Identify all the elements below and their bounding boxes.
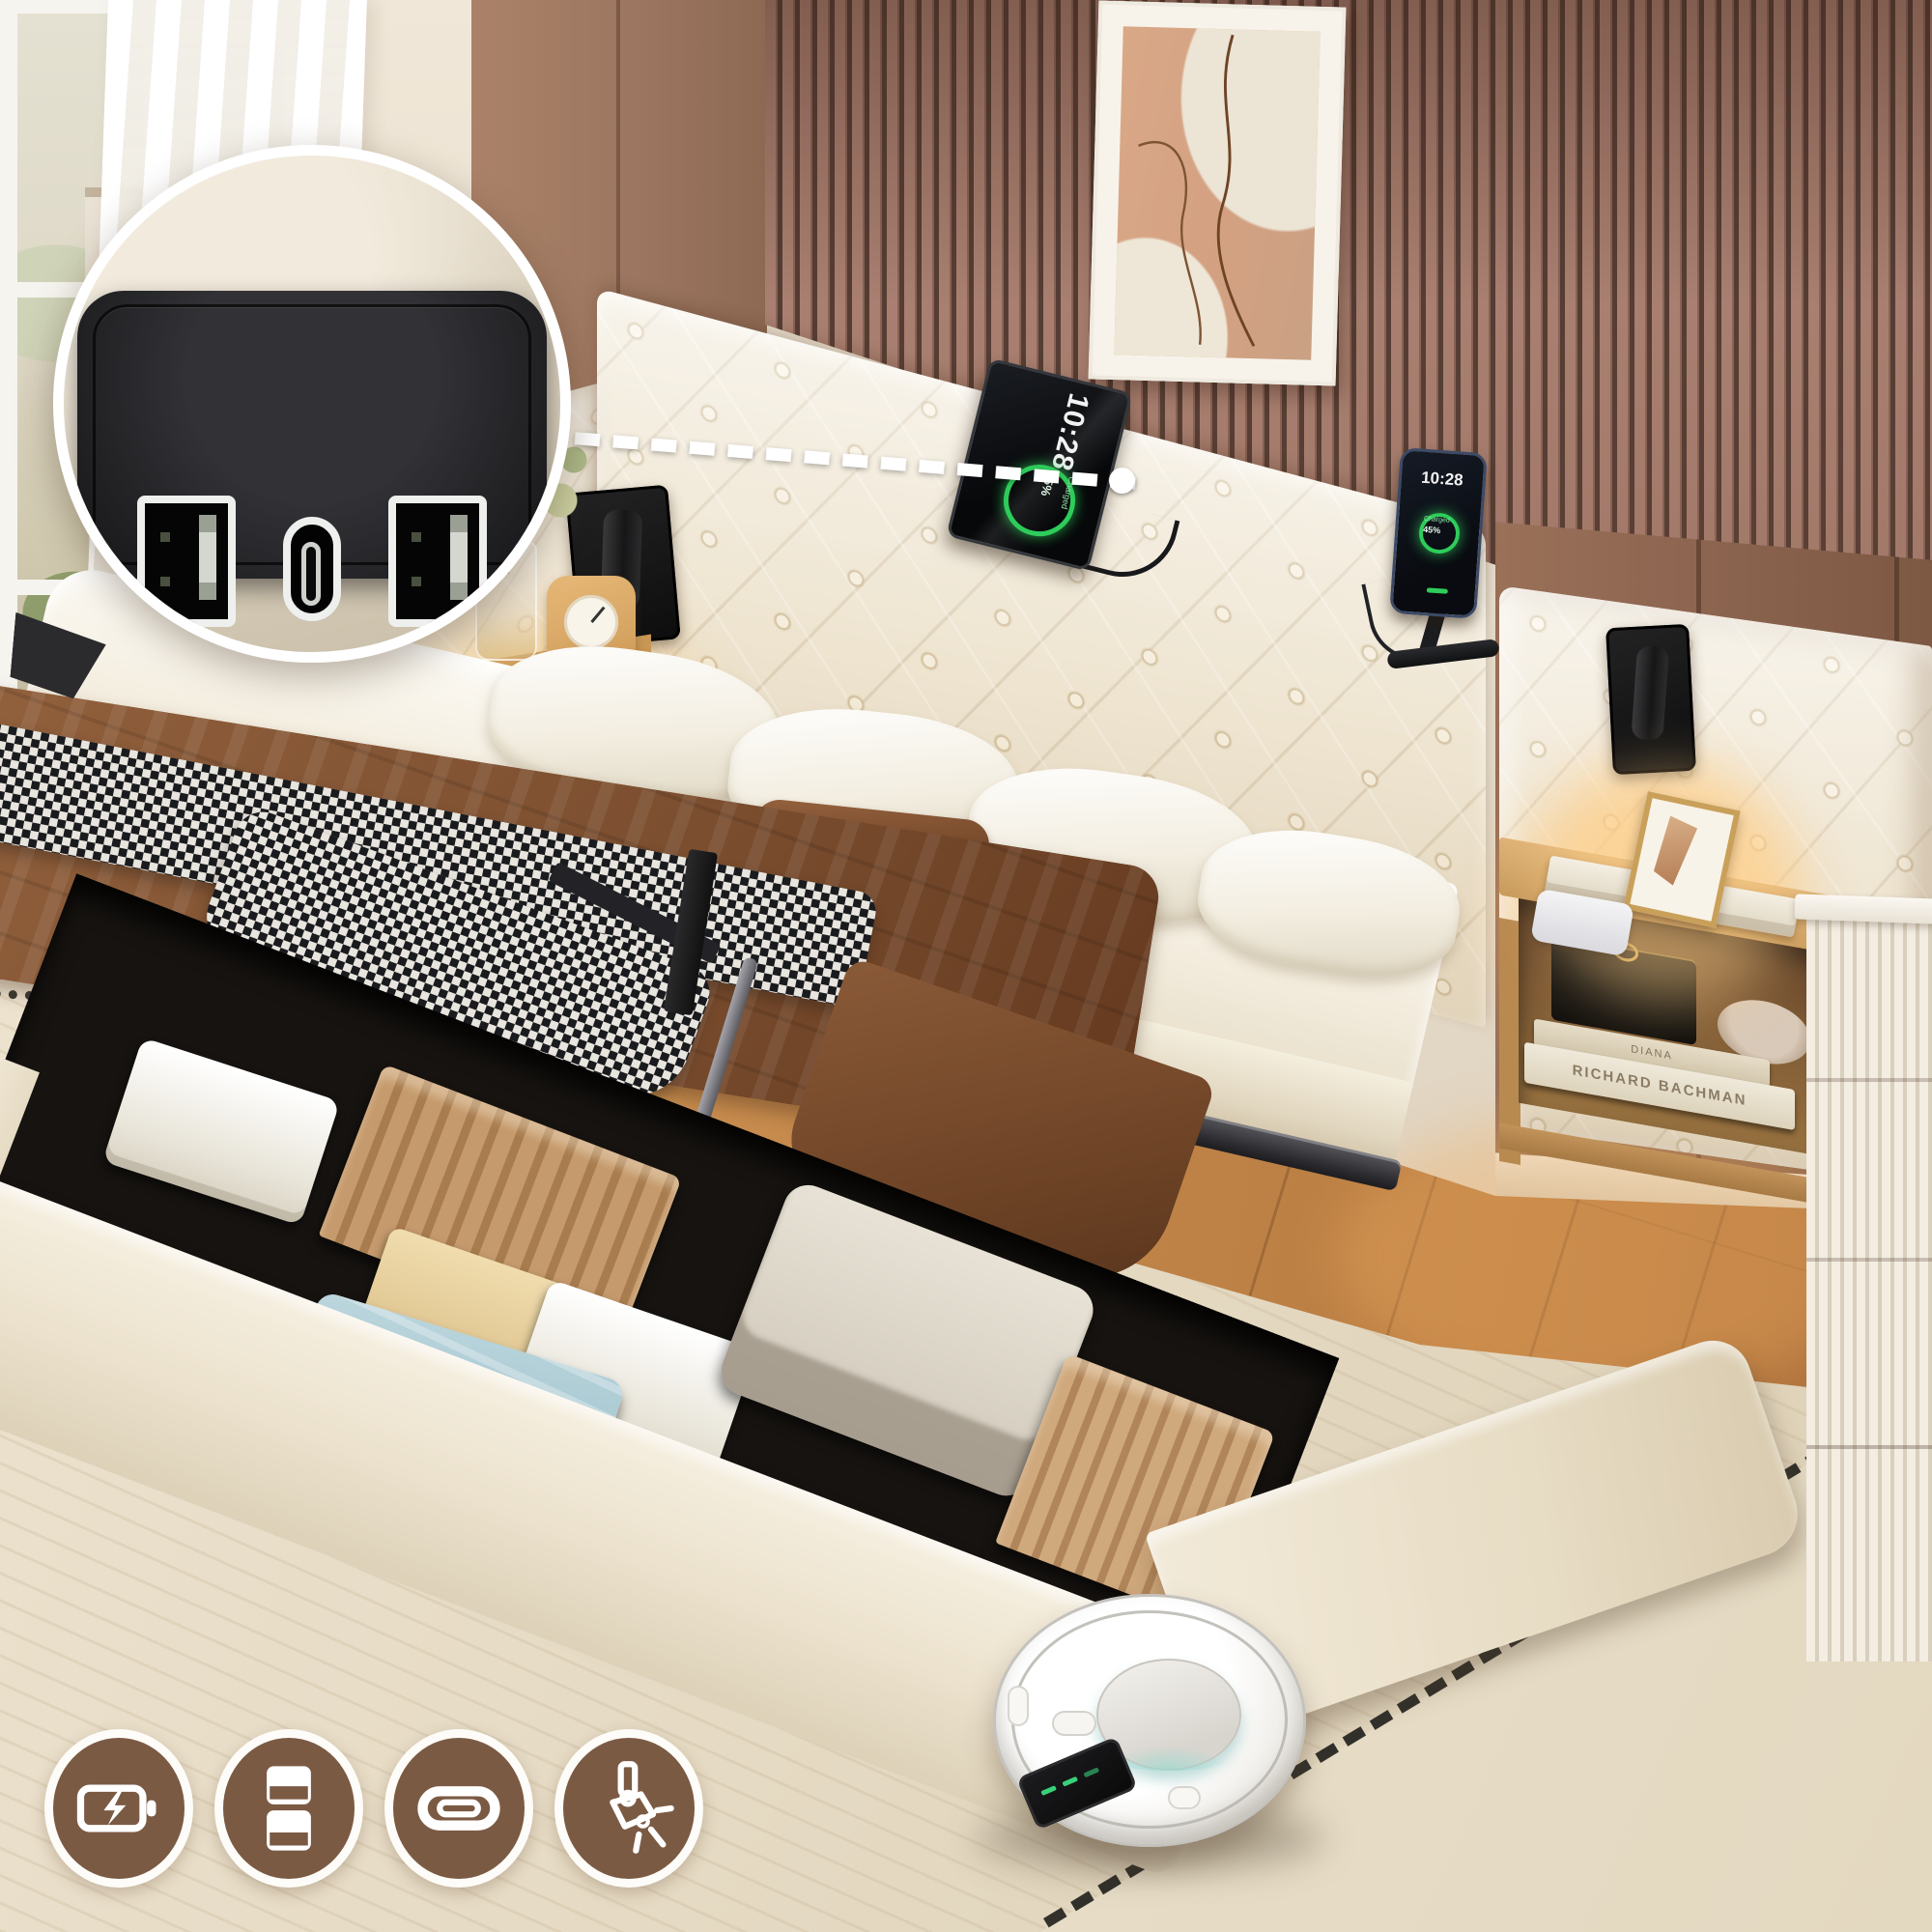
dual-usb-ports-icon	[239, 1758, 339, 1859]
usb-a-tongue	[450, 515, 468, 600]
callout-endpoint-dot	[1109, 468, 1135, 494]
charging-hub	[77, 291, 547, 579]
battery-status: Charged	[1424, 516, 1450, 525]
usb-c-tongue	[301, 542, 321, 606]
product-photo-stage: DIANA RICHARD BACHMAN 10:28 45% Charged …	[0, 0, 1932, 1932]
phone-clock: 10:28	[1401, 468, 1483, 492]
charge-bar	[1427, 587, 1448, 594]
spotlight-cylinder	[1631, 645, 1668, 741]
spotlight-icon	[579, 1758, 679, 1859]
usb-a-pins	[160, 532, 170, 542]
vacuum-bumper-slot	[1008, 1686, 1029, 1726]
charging-phone: 10:28 45% Charged	[1389, 447, 1488, 619]
feature-badge-usb-c	[384, 1729, 533, 1888]
usb-a-tongue	[199, 515, 216, 600]
usb-c-port-icon	[409, 1758, 509, 1859]
usb-a-pins	[412, 532, 421, 542]
tablet-clock: 10:28	[1048, 390, 1094, 464]
feature-badge-charging	[44, 1729, 193, 1888]
folded-shirts-white	[102, 1037, 340, 1226]
usb-a-port-left	[137, 496, 236, 627]
usb-a-port-right	[388, 496, 487, 627]
art-brush-lines	[1114, 26, 1320, 355]
white-fluted-dresser	[1806, 908, 1932, 1662]
photo	[1647, 813, 1708, 890]
dresser-top	[1795, 894, 1932, 923]
clock-hand	[590, 607, 605, 623]
charging-hub-closeup-inset	[53, 145, 571, 663]
battery-percent: 45%	[1423, 525, 1441, 535]
art-canvas	[1114, 26, 1320, 360]
charge-ring: 45% Charged	[1418, 512, 1462, 555]
robot-vacuum	[993, 1594, 1306, 1847]
framed-abstract-art	[1089, 1, 1347, 386]
feature-badge-dual-usb	[214, 1729, 363, 1888]
vacuum-button	[1052, 1711, 1096, 1736]
usb-c-port	[283, 517, 341, 621]
vacuum-bumper-slot	[1168, 1786, 1201, 1809]
clock-face	[564, 595, 618, 649]
battery-charging-icon	[69, 1758, 169, 1859]
feature-badge-spotlight	[554, 1729, 703, 1888]
reading-spotlight-right	[1605, 624, 1696, 775]
